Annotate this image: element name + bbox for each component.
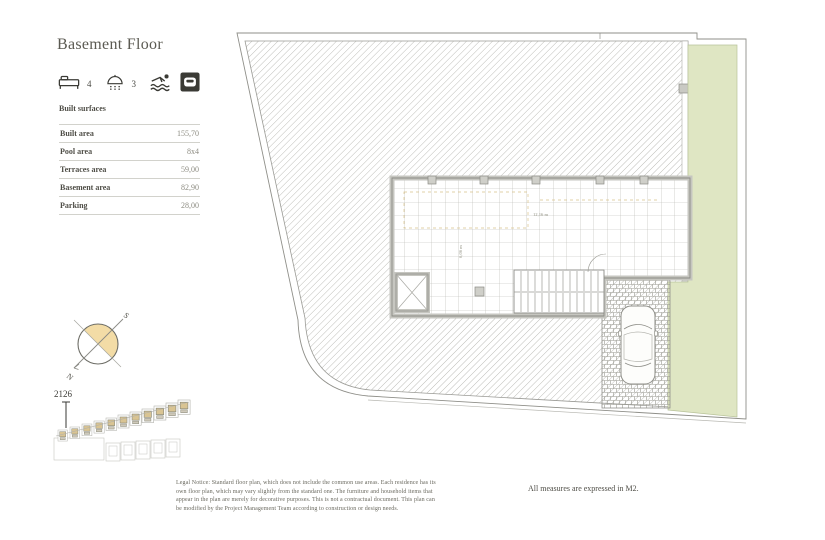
compass-rose: S N bbox=[60, 303, 136, 383]
table-row: Basement area 82,90 bbox=[59, 178, 200, 196]
legal-notice: Legal Notice: Standard floor plan, which… bbox=[176, 479, 442, 514]
bedrooms-count: 4 bbox=[87, 79, 92, 89]
compass-north-label: N bbox=[65, 372, 75, 383]
site-location-plan: 2126 bbox=[46, 386, 191, 466]
compass-south-label: S bbox=[122, 311, 131, 321]
built-surfaces-table: Built area 155,70 Pool area 8x4 Terraces… bbox=[59, 124, 200, 215]
built-surfaces-heading: Built surfaces bbox=[59, 104, 106, 113]
row-label: Basement area bbox=[60, 183, 110, 192]
shower-icon bbox=[105, 72, 125, 97]
table-row: Terraces area 59,00 bbox=[59, 160, 200, 178]
measures-note: All measures are expressed in M2. bbox=[528, 484, 639, 493]
garage-car-icon bbox=[180, 72, 200, 97]
amenities-row: 4 3 bbox=[58, 72, 200, 96]
row-label: Parking bbox=[60, 201, 88, 210]
bed-icon bbox=[58, 73, 80, 96]
unit-number-label: 2126 bbox=[54, 389, 73, 399]
car bbox=[619, 306, 658, 384]
page-title: Basement Floor bbox=[57, 36, 163, 54]
row-label: Terraces area bbox=[60, 165, 106, 174]
elevator-shaft bbox=[396, 274, 428, 311]
staircase bbox=[514, 270, 604, 313]
bathrooms-count: 3 bbox=[132, 79, 137, 89]
row-value: 59,00 bbox=[181, 165, 199, 174]
table-row: Built area 155,70 bbox=[59, 124, 200, 142]
table-row: Pool area 8x4 bbox=[59, 142, 200, 160]
row-value: 8x4 bbox=[187, 147, 199, 156]
row-label: Pool area bbox=[60, 147, 92, 156]
row-label: Built area bbox=[60, 129, 94, 138]
table-row: Parking 28,00 bbox=[59, 196, 200, 215]
row-value: 155,70 bbox=[177, 129, 199, 138]
row-value: 28,00 bbox=[181, 201, 199, 210]
floor-plan-drawing: 12,16 m 6,06 m bbox=[225, 15, 770, 475]
swimmer-icon bbox=[149, 72, 173, 97]
row-value: 82,90 bbox=[181, 183, 199, 192]
